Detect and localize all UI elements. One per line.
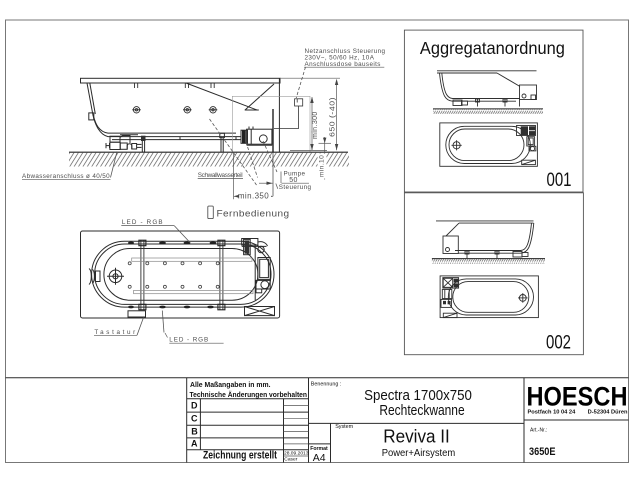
svg-text:B: B — [191, 426, 198, 436]
svg-text:Power+Airsystem: Power+Airsystem — [382, 448, 456, 459]
svg-text:Anschlussdose bauseits: Anschlussdose bauseits — [305, 61, 381, 68]
svg-text:A4: A4 — [313, 452, 326, 464]
svg-text:min.10: min.10 — [319, 155, 326, 177]
svg-text:LED - RGB: LED - RGB — [122, 219, 163, 226]
svg-text:Rechteckwanne: Rechteckwanne — [379, 402, 464, 419]
svg-text:Alle Maßangaben in mm.: Alle Maßangaben in mm. — [190, 380, 271, 389]
svg-text:Caser: Caser — [284, 457, 297, 463]
svg-text:Reviva II: Reviva II — [383, 425, 450, 446]
svg-text:Benennung :: Benennung : — [311, 382, 342, 388]
svg-text:A: A — [191, 439, 198, 449]
svg-text:D: D — [191, 401, 198, 411]
svg-text:min.350: min.350 — [238, 191, 269, 200]
svg-text:3650E: 3650E — [529, 446, 556, 458]
svg-text:Art.-Nr.:: Art.-Nr.: — [530, 428, 547, 434]
svg-text:Technische Änderungen vorbehal: Technische Änderungen vorbehalten — [190, 390, 308, 399]
svg-text:Postfach 10 04 24: Postfach 10 04 24 — [528, 410, 577, 416]
svg-text:28.09.2013: 28.09.2013 — [284, 450, 309, 456]
svg-text:C: C — [191, 414, 198, 424]
svg-text:D-52304 Düren: D-52304 Düren — [588, 410, 628, 416]
svg-text:Tastatur: Tastatur — [94, 329, 135, 336]
svg-text:001: 001 — [547, 169, 572, 191]
svg-text:HOESCH: HOESCH — [527, 382, 628, 412]
svg-text:min.300: min.300 — [312, 111, 319, 139]
svg-text:Zeichnung erstellt: Zeichnung erstellt — [203, 449, 277, 461]
svg-text:002: 002 — [546, 332, 571, 354]
svg-text:Aggregatanordnung: Aggregatanordnung — [420, 38, 565, 58]
svg-text:System: System — [335, 424, 353, 430]
svg-text:Steuerung: Steuerung — [279, 184, 312, 191]
svg-text:Fernbedienung: Fernbedienung — [217, 208, 290, 219]
svg-text:Schwallwasserteil: Schwallwasserteil — [198, 172, 243, 179]
svg-text:650 (-40): 650 (-40) — [330, 97, 337, 137]
svg-text:LED - RGB: LED - RGB — [169, 337, 208, 344]
